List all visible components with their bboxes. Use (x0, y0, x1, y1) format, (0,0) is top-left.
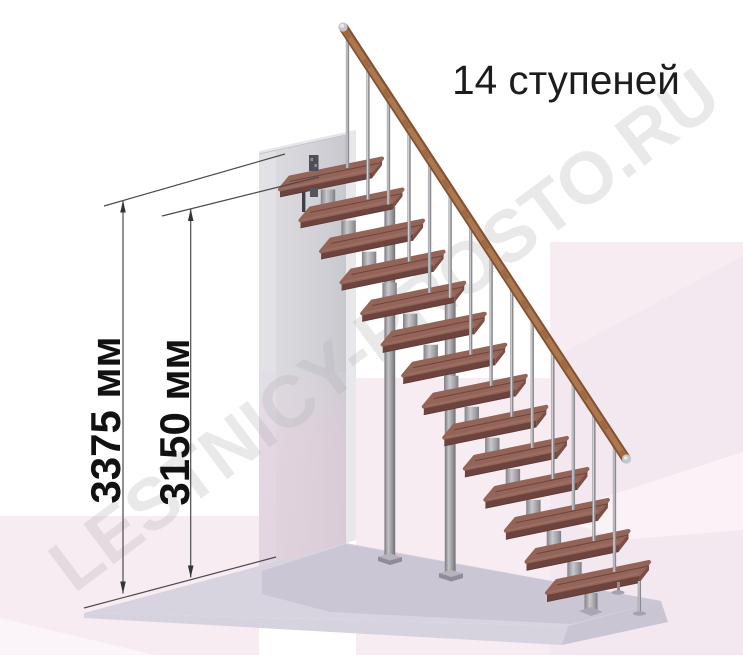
svg-text:14 ступеней: 14 ступеней (452, 57, 680, 103)
svg-text:3375 мм: 3375 мм (82, 336, 129, 503)
svg-text:3150 мм: 3150 мм (151, 338, 198, 505)
